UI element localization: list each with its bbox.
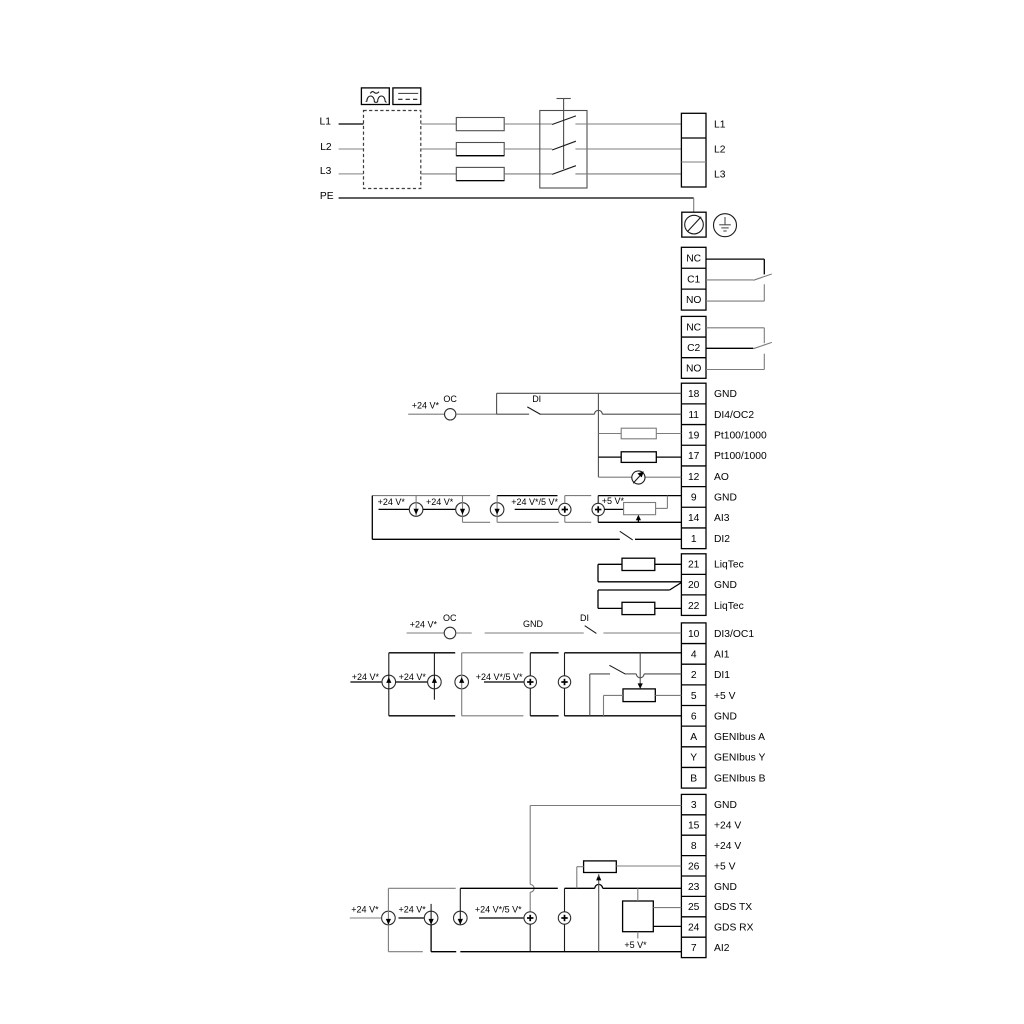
svg-text:14: 14 — [688, 513, 700, 524]
svg-text:C1: C1 — [687, 274, 700, 285]
svg-text:4: 4 — [691, 649, 697, 660]
svg-text:11: 11 — [688, 410, 699, 421]
svg-text:+5 V: +5 V — [714, 691, 736, 702]
svg-text:L1: L1 — [714, 120, 726, 131]
svg-text:5: 5 — [691, 691, 697, 702]
svg-text:17: 17 — [688, 451, 700, 462]
svg-text:22: 22 — [688, 601, 700, 612]
svg-text:+5 V*: +5 V* — [624, 940, 647, 950]
svg-text:+24 V*: +24 V* — [399, 672, 427, 682]
svg-text:L1: L1 — [320, 117, 332, 128]
svg-text:+24 V*: +24 V* — [410, 620, 438, 630]
svg-text:OC: OC — [443, 394, 457, 404]
svg-text:12: 12 — [688, 472, 700, 483]
svg-text:GND: GND — [714, 580, 737, 591]
svg-text:9: 9 — [691, 493, 697, 504]
svg-text:+24 V*: +24 V* — [426, 497, 454, 507]
svg-text:DI: DI — [532, 394, 541, 404]
svg-text:Pt100/1000: Pt100/1000 — [714, 451, 767, 462]
svg-text:DI4/OC2: DI4/OC2 — [714, 410, 754, 421]
svg-text:AO: AO — [714, 472, 729, 483]
svg-text:3: 3 — [691, 800, 697, 811]
svg-text:18: 18 — [688, 389, 700, 400]
svg-text:NO: NO — [686, 364, 701, 375]
svg-text:NC: NC — [686, 253, 701, 264]
svg-text:PE: PE — [320, 191, 334, 202]
svg-text:LiqTec: LiqTec — [714, 560, 744, 571]
svg-text:AI3: AI3 — [714, 513, 730, 524]
svg-text:DI3/OC1: DI3/OC1 — [714, 629, 754, 640]
svg-text:L3: L3 — [320, 166, 332, 177]
svg-text:DI2: DI2 — [714, 534, 730, 545]
svg-text:GND: GND — [714, 389, 737, 400]
svg-text:NO: NO — [686, 295, 701, 306]
svg-text:+24 V*: +24 V* — [351, 904, 379, 914]
svg-text:21: 21 — [688, 560, 700, 571]
svg-text:25: 25 — [688, 902, 700, 913]
svg-text:GDS RX: GDS RX — [714, 923, 754, 934]
svg-text:GND: GND — [714, 800, 737, 811]
svg-text:B: B — [690, 773, 697, 784]
svg-text:L3: L3 — [714, 170, 726, 181]
svg-text:+24 V*/5 V*: +24 V*/5 V* — [511, 497, 558, 507]
svg-text:+5 V: +5 V — [714, 861, 736, 872]
svg-text:DI: DI — [580, 613, 589, 623]
svg-text:DI1: DI1 — [714, 670, 730, 681]
svg-text:C2: C2 — [687, 343, 700, 354]
svg-text:GND: GND — [714, 493, 737, 504]
svg-text:GENIbus Y: GENIbus Y — [714, 753, 765, 764]
svg-text:L2: L2 — [714, 145, 726, 156]
svg-text:GND: GND — [523, 619, 544, 629]
svg-text:AI2: AI2 — [714, 943, 730, 954]
svg-text:AI1: AI1 — [714, 649, 730, 660]
svg-text:GND: GND — [714, 711, 737, 722]
svg-text:A: A — [690, 732, 697, 743]
svg-text:23: 23 — [688, 882, 700, 893]
svg-text:+24 V*: +24 V* — [399, 904, 427, 914]
svg-text:+24 V*/5 V*: +24 V*/5 V* — [475, 904, 522, 914]
svg-text:19: 19 — [688, 431, 700, 442]
svg-text:LiqTec: LiqTec — [714, 601, 744, 612]
svg-text:Pt100/1000: Pt100/1000 — [714, 431, 767, 442]
svg-text:10: 10 — [688, 629, 700, 640]
svg-text:24: 24 — [688, 923, 700, 934]
svg-text:+24 V*/5 V*: +24 V*/5 V* — [476, 672, 523, 682]
svg-text:+24 V*: +24 V* — [352, 672, 380, 682]
svg-text:15: 15 — [688, 821, 700, 832]
svg-text:GDS TX: GDS TX — [714, 902, 752, 913]
svg-text:6: 6 — [691, 711, 697, 722]
svg-text:GENIbus A: GENIbus A — [714, 732, 765, 743]
svg-text:GND: GND — [714, 882, 737, 893]
svg-text:L2: L2 — [320, 142, 332, 153]
svg-text:20: 20 — [688, 580, 700, 591]
svg-text:+5 V*: +5 V* — [602, 496, 625, 506]
svg-text:2: 2 — [691, 670, 697, 681]
svg-text:26: 26 — [688, 861, 700, 872]
svg-text:+24 V: +24 V — [714, 821, 741, 832]
svg-text:8: 8 — [691, 841, 697, 852]
svg-text:+24 V: +24 V — [714, 841, 741, 852]
svg-text:+24 V*: +24 V* — [378, 497, 406, 507]
svg-text:NC: NC — [686, 322, 701, 333]
svg-text:OC: OC — [443, 613, 457, 623]
svg-text:7: 7 — [691, 943, 697, 954]
svg-text:1: 1 — [691, 534, 697, 545]
svg-text:+24 V*: +24 V* — [412, 401, 440, 411]
svg-text:Y: Y — [690, 753, 697, 764]
svg-text:GENIbus B: GENIbus B — [714, 773, 766, 784]
